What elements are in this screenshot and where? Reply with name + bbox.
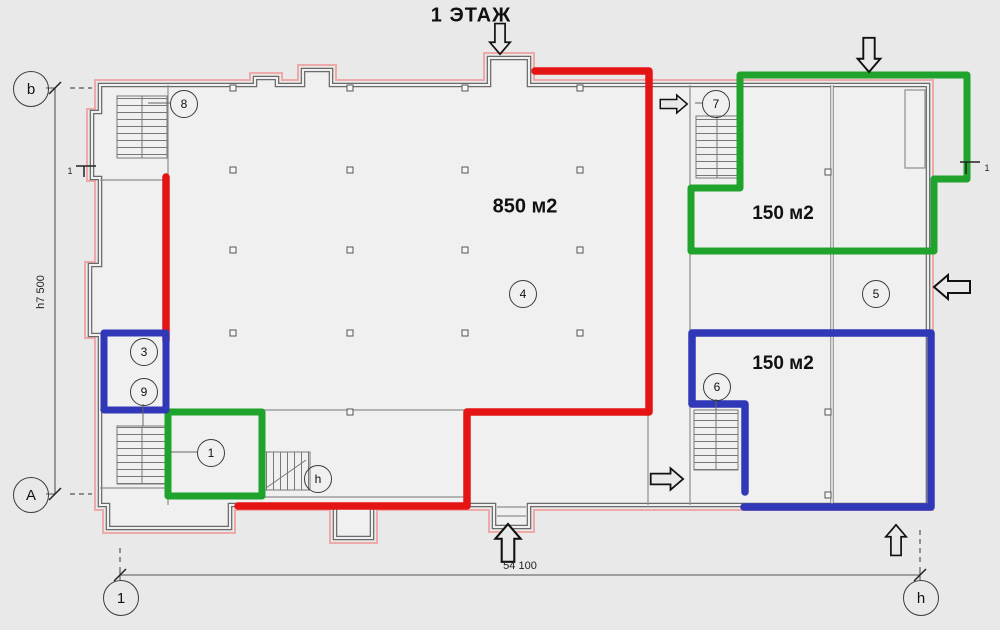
floor-plan-canvas: 1 ЭТАЖ 850 м2 150 м2 150 м2 54 100 h7 50… [0,0,1000,630]
bottom-center-arrow-up-icon [495,524,520,562]
room-bubble-h: h [304,465,332,493]
room-bubble-1: 1 [197,439,225,467]
bottom-right-arrow-up-icon [886,525,906,556]
section-mark-right: 1 [984,163,989,173]
top-right-arrow-down-icon [858,38,881,72]
axis-bubble-a: А [13,477,49,513]
zone-top-right-area-label: 150 м2 [752,203,814,225]
room-bubble-5: 5 [862,280,890,308]
zone-hall-area-label: 850 м2 [493,196,558,219]
room-bubble-8: 8 [170,90,198,118]
right-side-arrow-left-icon [934,275,970,299]
room-bubble-6: 6 [703,373,731,401]
total-width-dimension: 54 100 [503,560,537,572]
axis-bubble-h: h [903,580,939,616]
axis-bubble-1: 1 [103,580,139,616]
room-bubble-3: 3 [130,338,158,366]
floor-title: 1 ЭТАЖ [431,5,511,28]
room-bubble-4: 4 [509,280,537,308]
title-entrance-arrow-down-icon [490,24,510,55]
axis-bubble-b: b [13,71,49,107]
section-mark-left: 1 [67,166,72,176]
dim-line-vertical [46,88,55,494]
room-bubble-9: 9 [130,378,158,406]
entry-steps-h [263,452,310,490]
floor-plan-drawing [0,0,1000,630]
zone-bottom-right-area-label: 150 м2 [752,353,814,375]
total-height-dimension: h7 500 [35,275,47,309]
room-bubble-7: 7 [702,90,730,118]
